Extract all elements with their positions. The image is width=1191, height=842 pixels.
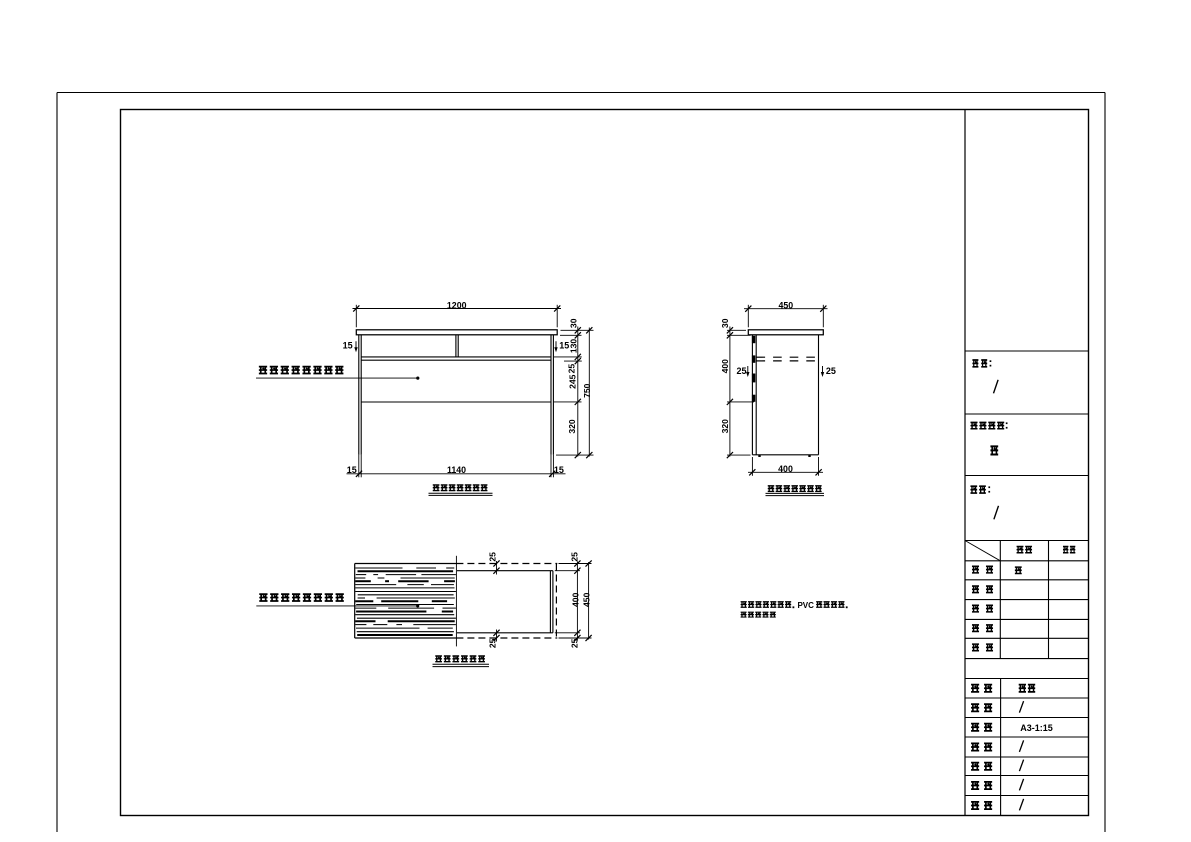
svg-text:25: 25 bbox=[488, 638, 498, 648]
svg-text:400: 400 bbox=[720, 359, 730, 374]
svg-text:25: 25 bbox=[736, 366, 746, 376]
svg-text:1200: 1200 bbox=[447, 300, 467, 310]
svg-text:25: 25 bbox=[569, 552, 579, 562]
svg-text:30: 30 bbox=[568, 318, 578, 328]
svg-text:320: 320 bbox=[567, 419, 577, 434]
svg-text:400: 400 bbox=[571, 592, 581, 607]
svg-text:30: 30 bbox=[720, 318, 730, 328]
svg-text:450: 450 bbox=[581, 592, 591, 607]
svg-text:750: 750 bbox=[582, 383, 592, 398]
svg-text:245: 245 bbox=[567, 374, 577, 389]
svg-text:15: 15 bbox=[347, 465, 357, 475]
svg-text:1140: 1140 bbox=[447, 465, 466, 475]
svg-text:25: 25 bbox=[569, 638, 579, 648]
svg-text:400: 400 bbox=[778, 464, 793, 474]
svg-text:25: 25 bbox=[488, 552, 498, 562]
svg-text:25: 25 bbox=[826, 366, 836, 376]
svg-text:25: 25 bbox=[567, 364, 577, 374]
svg-text:A3-1:15: A3-1:15 bbox=[1020, 723, 1053, 733]
svg-text:450: 450 bbox=[778, 300, 793, 310]
svg-text:PVC: PVC bbox=[797, 601, 814, 610]
svg-text:15: 15 bbox=[343, 340, 353, 350]
svg-text:130: 130 bbox=[569, 339, 579, 354]
svg-text:15: 15 bbox=[554, 465, 564, 475]
svg-text:320: 320 bbox=[720, 419, 730, 434]
